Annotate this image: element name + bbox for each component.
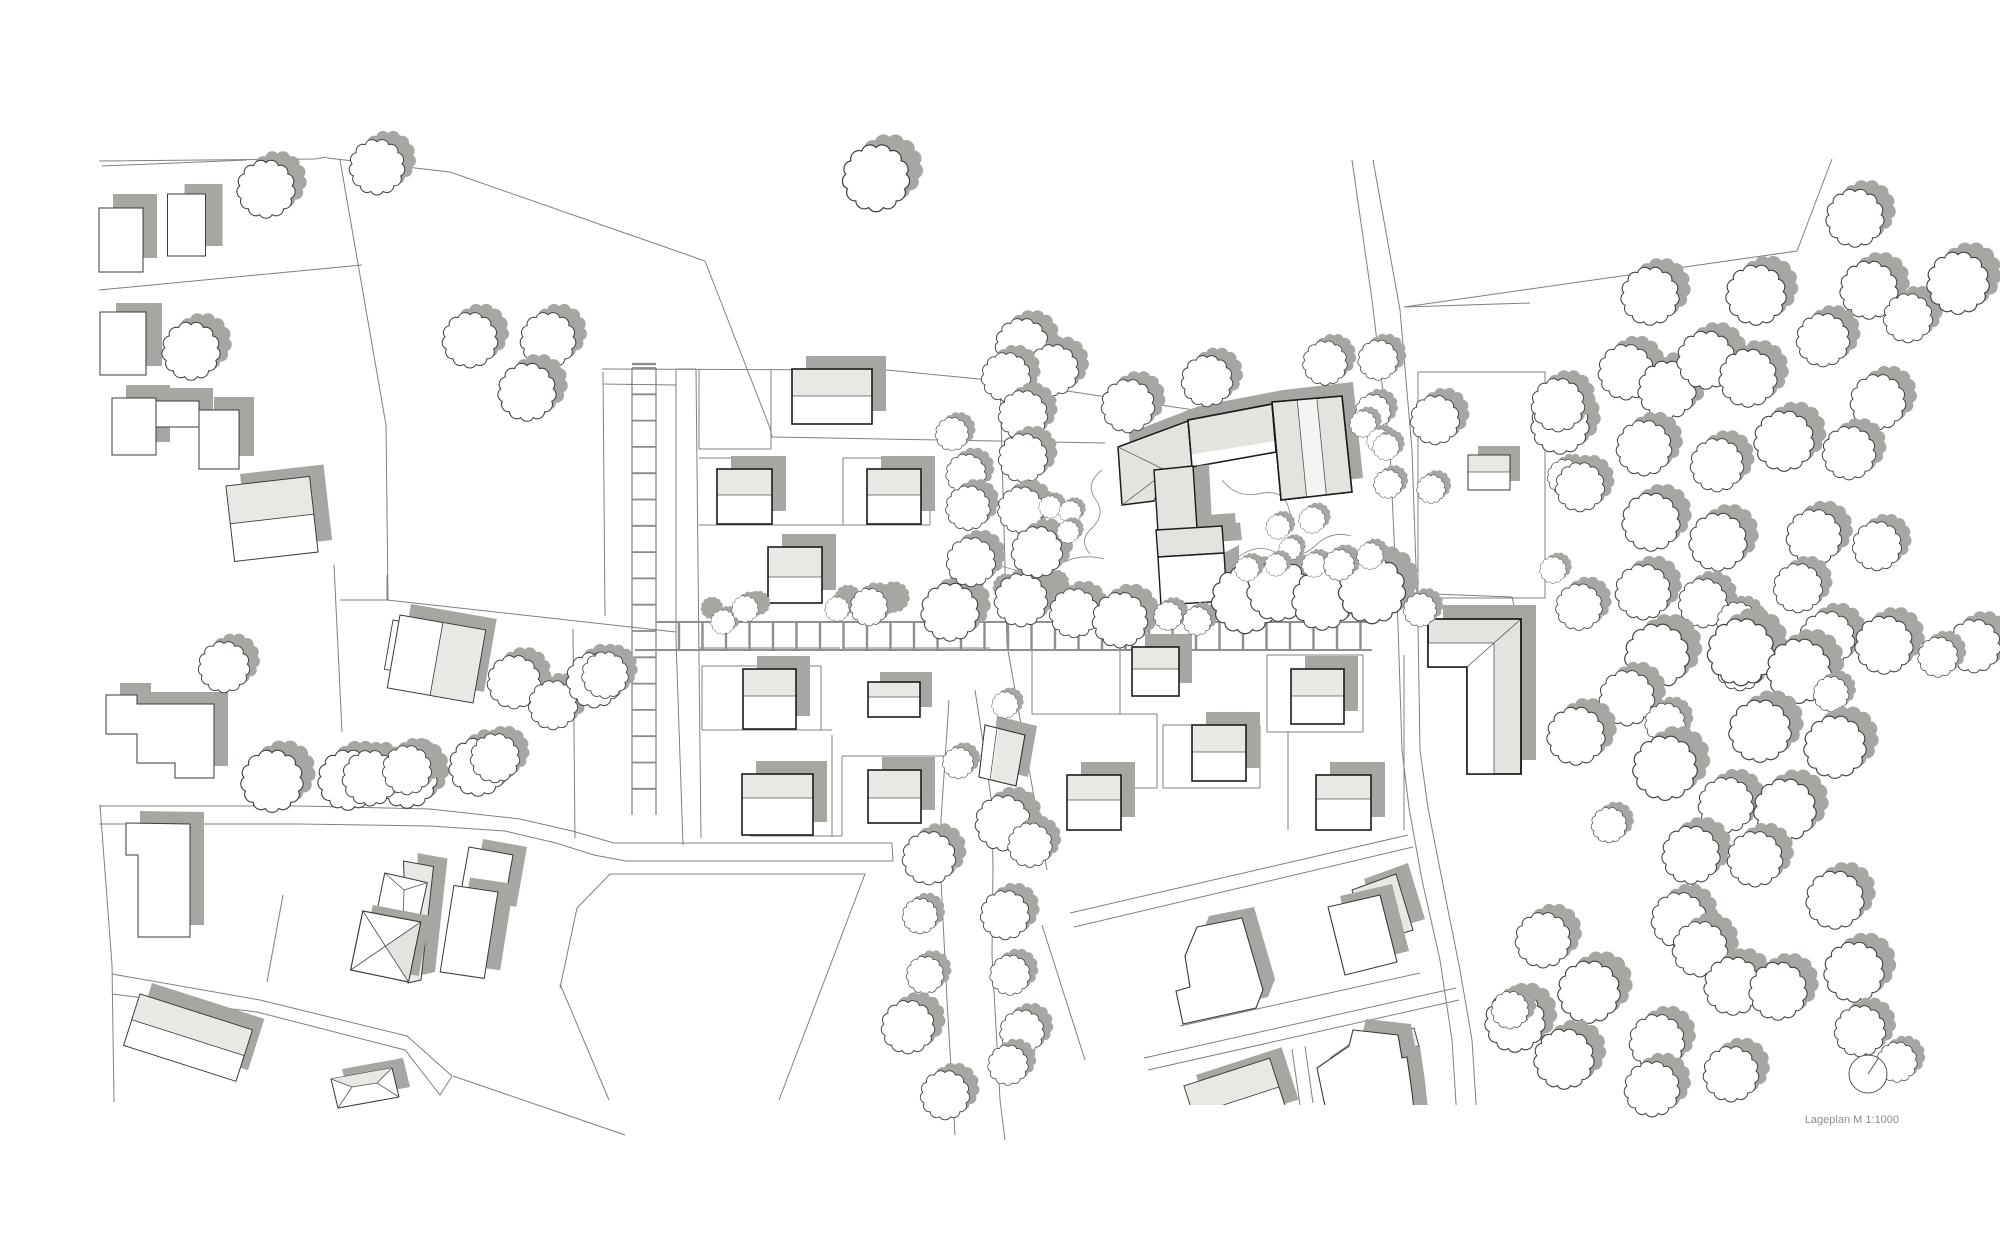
- svg-text:Lageplan M 1:1000: Lageplan M 1:1000: [1805, 1114, 1899, 1126]
